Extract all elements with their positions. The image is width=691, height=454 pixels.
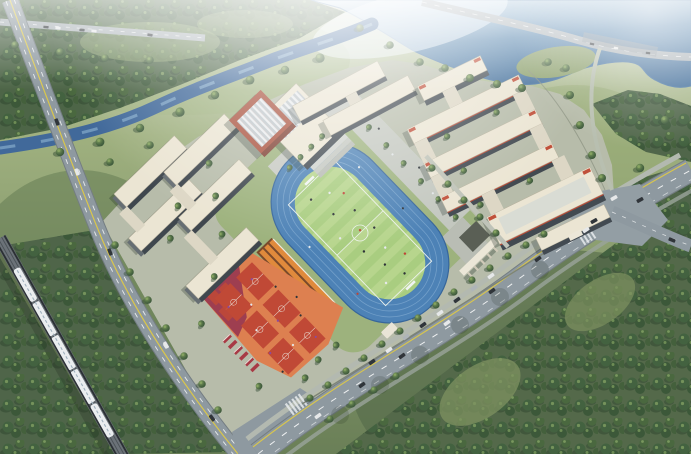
campus-aerial-rendering (0, 0, 691, 454)
screenshot-root (0, 0, 691, 454)
